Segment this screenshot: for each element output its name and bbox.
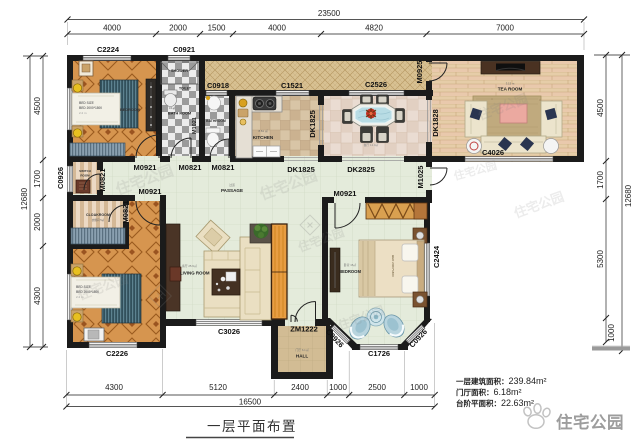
svg-text:BEDROOM: BEDROOM xyxy=(120,108,140,112)
svg-text:TEA ROOM: TEA ROOM xyxy=(498,87,523,92)
svg-text:KITCHEN: KITCHEN xyxy=(253,135,274,140)
svg-text:LIVING ROOM: LIVING ROOM xyxy=(180,271,210,276)
svg-text:CLOAKROOM: CLOAKROOM xyxy=(86,213,110,217)
svg-text:M0921: M0921 xyxy=(334,189,357,198)
svg-text:BATHROOM: BATHROOM xyxy=(206,119,226,123)
svg-text:C3026: C3026 xyxy=(218,327,240,336)
svg-text:过道: 过道 xyxy=(229,183,235,187)
svg-text:HALL: HALL xyxy=(296,354,308,359)
svg-text:衣帽间 5㎡: 衣帽间 5㎡ xyxy=(92,218,105,222)
svg-text:8.61 ㎡: 8.61 ㎡ xyxy=(258,129,267,133)
svg-text:C4026: C4026 xyxy=(482,148,504,157)
svg-text:1000: 1000 xyxy=(329,383,347,392)
svg-text:1000: 1000 xyxy=(607,324,616,342)
svg-text:2.2 m: 2.2 m xyxy=(79,111,87,115)
svg-text:C1521: C1521 xyxy=(281,81,303,90)
svg-text:M0925: M0925 xyxy=(415,61,424,84)
svg-text:M1021: M1021 xyxy=(192,117,198,134)
svg-text:4000: 4000 xyxy=(103,24,121,33)
svg-text:4000: 4000 xyxy=(268,24,286,33)
svg-text:M0821: M0821 xyxy=(179,163,202,172)
svg-text:16500: 16500 xyxy=(239,398,262,407)
svg-text:3.15 m: 3.15 m xyxy=(506,82,515,86)
svg-text:BED 2000*1800: BED 2000*1800 xyxy=(79,106,102,110)
svg-text:C2224: C2224 xyxy=(97,45,120,54)
svg-text:BEDROOM: BEDROOM xyxy=(339,269,361,274)
svg-text:1500: 1500 xyxy=(208,24,226,33)
svg-text:2000: 2000 xyxy=(33,213,42,231)
svg-text:C0926: C0926 xyxy=(56,167,65,189)
svg-text:4300: 4300 xyxy=(33,287,42,305)
svg-text:4500: 4500 xyxy=(596,99,605,117)
svg-text:M0821: M0821 xyxy=(121,201,130,224)
svg-text:住宅公园: 住宅公园 xyxy=(556,412,624,432)
svg-text:一层平面布置: 一层平面布置 xyxy=(207,419,297,434)
svg-text:餐厅 12.0㎡: 餐厅 12.0㎡ xyxy=(364,143,379,147)
svg-text:PASSAGE: PASSAGE xyxy=(221,188,243,193)
svg-text:23500: 23500 xyxy=(318,9,341,18)
svg-text:C2226: C2226 xyxy=(106,349,128,358)
svg-text:12680: 12680 xyxy=(624,184,633,207)
svg-text:DK2825: DK2825 xyxy=(347,165,375,174)
svg-text:2400: 2400 xyxy=(291,383,309,392)
svg-text:SWITCH: SWITCH xyxy=(79,169,91,173)
svg-text:5300: 5300 xyxy=(596,250,605,268)
svg-text:5120: 5120 xyxy=(209,383,227,392)
svg-text:TOILET: TOILET xyxy=(179,87,192,91)
svg-text:3.1㎡: 3.1㎡ xyxy=(169,106,176,110)
svg-text:4500: 4500 xyxy=(33,97,42,115)
svg-text:DK1828: DK1828 xyxy=(431,109,440,137)
svg-text:M0821: M0821 xyxy=(98,169,107,192)
svg-text:DK1825: DK1825 xyxy=(308,110,317,138)
svg-text:M0821: M0821 xyxy=(212,163,235,172)
svg-text:1000: 1000 xyxy=(410,383,428,392)
svg-text:SHOWER: SHOWER xyxy=(171,69,188,73)
svg-text:1700: 1700 xyxy=(596,171,605,189)
svg-text:ROOM: ROOM xyxy=(80,174,90,178)
svg-text:M1025: M1025 xyxy=(416,166,425,189)
svg-text:12680: 12680 xyxy=(20,187,29,210)
svg-text:C0921: C0921 xyxy=(173,45,195,54)
svg-text:卧室 15㎡: 卧室 15㎡ xyxy=(344,263,356,267)
svg-text:门厅 6.1㎡: 门厅 6.1㎡ xyxy=(295,348,308,352)
svg-text:门厅面积：6.18m²: 门厅面积：6.18m² xyxy=(456,387,522,397)
svg-text:C2526: C2526 xyxy=(365,80,387,89)
svg-text:客厅 25.9㎡: 客厅 25.9㎡ xyxy=(182,264,197,268)
svg-text:BATH ROOM: BATH ROOM xyxy=(168,112,191,116)
svg-text:7000: 7000 xyxy=(496,24,514,33)
svg-text:2000: 2000 xyxy=(169,24,187,33)
svg-text:C1726: C1726 xyxy=(368,349,390,358)
svg-text:C0918: C0918 xyxy=(207,81,229,90)
svg-text:BED 2000*1800: BED 2000*1800 xyxy=(391,255,395,277)
svg-text:一层建筑面积：239.84m²: 一层建筑面积：239.84m² xyxy=(456,376,547,386)
svg-text:BED SIZE: BED SIZE xyxy=(79,101,94,105)
svg-text:2500: 2500 xyxy=(368,383,386,392)
svg-text:台阶平面积：22.63m²: 台阶平面积：22.63m² xyxy=(456,398,534,408)
svg-text:ZM1222: ZM1222 xyxy=(290,325,318,334)
svg-text:C2424: C2424 xyxy=(432,245,441,268)
svg-text:4820: 4820 xyxy=(365,24,383,33)
svg-text:4300: 4300 xyxy=(105,383,123,392)
svg-text:1700: 1700 xyxy=(33,170,42,188)
